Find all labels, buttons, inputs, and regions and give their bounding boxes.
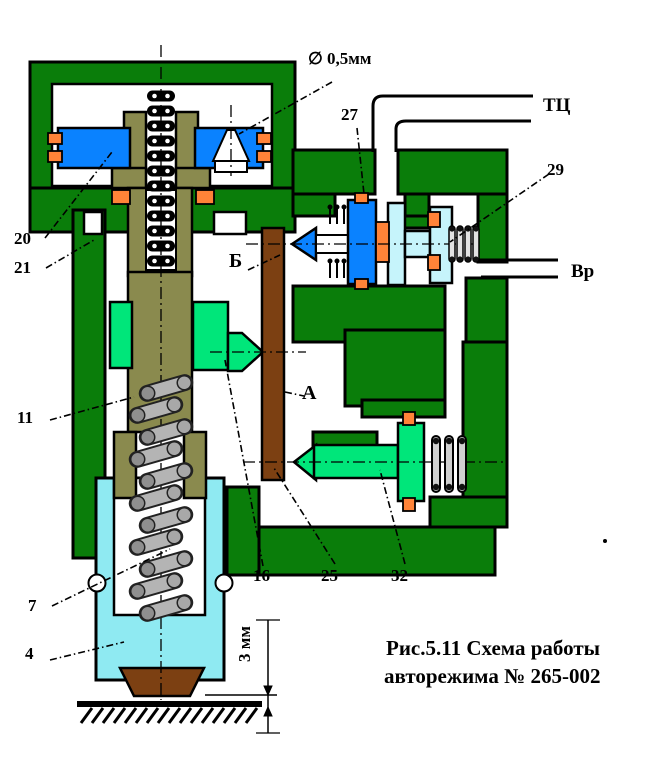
chain-link	[147, 226, 175, 237]
partition-notch-left	[84, 212, 102, 234]
cylinder-side-column	[227, 487, 259, 575]
chain-link-dot	[165, 124, 170, 129]
chain-link-dot	[152, 259, 157, 264]
label-21: 21	[14, 258, 31, 278]
ground-hatch	[81, 708, 257, 723]
chain-link	[147, 106, 175, 117]
support-foot	[120, 668, 204, 696]
chain-link-dot	[152, 124, 157, 129]
pipe-tc-inner	[396, 121, 531, 152]
seal	[403, 412, 415, 425]
label-25: 25	[321, 566, 338, 586]
seal	[355, 279, 368, 289]
chain-link	[147, 121, 175, 132]
spring-coil	[432, 436, 440, 492]
chain-link-dot	[152, 229, 157, 234]
chain-link-dot	[165, 94, 170, 99]
caption-line1: Рис.5.11 Схема работы	[386, 636, 600, 661]
dim-arrow-up	[264, 686, 272, 695]
chain-link-dot	[165, 199, 170, 204]
label-orifice: ∅ 0,5мм	[308, 49, 371, 69]
chain-link-dot	[165, 109, 170, 114]
chain-link	[147, 151, 175, 162]
hatch-mark	[147, 708, 158, 723]
seal	[257, 151, 271, 162]
label-4: 4	[25, 644, 34, 664]
hatch-mark	[213, 708, 224, 723]
seal	[355, 193, 368, 203]
spring-32	[432, 436, 466, 492]
mid-right-block	[345, 330, 445, 406]
hatch-mark	[114, 708, 125, 723]
chain-link-dot	[152, 214, 157, 219]
right-wall-lower	[463, 342, 507, 502]
chain-link-dot	[152, 169, 157, 174]
caption-line2: авторежима № 265-002	[384, 664, 600, 689]
hatch-mark	[169, 708, 180, 723]
hatch-mark	[246, 708, 257, 723]
label-chamber-a: А	[302, 382, 316, 405]
label-pipe-vr: Вр	[571, 261, 594, 283]
roof	[398, 150, 507, 194]
hatch-mark	[92, 708, 103, 723]
lever-bar	[262, 228, 284, 480]
chain-link	[147, 196, 175, 207]
hatch-mark	[235, 708, 246, 723]
stem-foot-left	[112, 168, 146, 188]
chain-link-dot	[165, 259, 170, 264]
seal	[376, 222, 389, 262]
chain-link-dot	[165, 214, 170, 219]
chain-link-dot	[152, 154, 157, 159]
chain-link	[147, 241, 175, 252]
seal	[112, 190, 130, 204]
chain-link-dot	[152, 184, 157, 189]
hatch-mark	[191, 708, 202, 723]
figure-canvas: 20 21 ∅ 0,5мм 27 ТЦ 29 Вр Б А 11 7 4 16 …	[0, 0, 656, 758]
bottom-bar-main	[255, 527, 495, 575]
chain-link-dot	[152, 139, 157, 144]
chain-link	[147, 181, 175, 192]
spring-29	[449, 226, 479, 262]
chain-link	[147, 166, 175, 177]
spring-coil	[445, 436, 453, 492]
label-27: 27	[341, 105, 358, 125]
label-32: 32	[391, 566, 408, 586]
label-7: 7	[28, 596, 37, 616]
seal	[48, 133, 62, 144]
chain-link-dot	[152, 109, 157, 114]
label-gap-3mm: 3 мм	[235, 609, 255, 679]
ground	[77, 701, 262, 707]
collar-left	[110, 302, 132, 368]
seal	[48, 151, 62, 162]
valve-body	[348, 200, 376, 284]
hatch-mark	[81, 708, 92, 723]
label-pipe-tc: ТЦ	[543, 95, 570, 117]
label-16: 16	[253, 566, 270, 586]
spring-coil	[458, 436, 466, 492]
cylinder-groove-right	[216, 575, 233, 592]
seal	[257, 133, 271, 144]
stem-foot-right	[176, 168, 210, 188]
right-wall-upper	[478, 194, 507, 262]
hatch-mark	[103, 708, 114, 723]
cylinder-groove-left	[89, 575, 106, 592]
partition-notch-right	[214, 212, 246, 234]
label-11: 11	[17, 408, 33, 428]
collar-right	[193, 302, 228, 370]
chain-link	[147, 211, 175, 222]
dim-arrow-down	[264, 707, 272, 716]
chain-link-dot	[152, 244, 157, 249]
hatch-mark	[136, 708, 147, 723]
piston-left	[58, 128, 130, 168]
chain-link-dot	[165, 244, 170, 249]
seal	[428, 212, 440, 227]
chain-link-dot	[165, 169, 170, 174]
label-chamber-b: Б	[229, 250, 242, 273]
seal	[196, 190, 214, 204]
label-29: 29	[547, 160, 564, 180]
chain-link-dot	[165, 229, 170, 234]
hatch-mark	[180, 708, 191, 723]
hatch-mark	[158, 708, 169, 723]
seal	[428, 255, 440, 270]
chain-link-dot	[152, 94, 157, 99]
chain-link	[147, 256, 175, 267]
chain-link	[147, 136, 175, 147]
chain-link-dot	[165, 154, 170, 159]
chain-link-dot	[152, 199, 157, 204]
chain-link-dot	[165, 139, 170, 144]
hatch-mark	[224, 708, 235, 723]
seal	[403, 498, 415, 511]
chain-link	[147, 91, 175, 102]
label-20: 20	[14, 229, 31, 249]
hatch-mark	[202, 708, 213, 723]
ground-line	[77, 701, 262, 707]
hatch-mark	[125, 708, 136, 723]
chain-link-dot	[165, 184, 170, 189]
bottom-bar-right	[430, 497, 507, 527]
stray-dot	[603, 539, 607, 543]
